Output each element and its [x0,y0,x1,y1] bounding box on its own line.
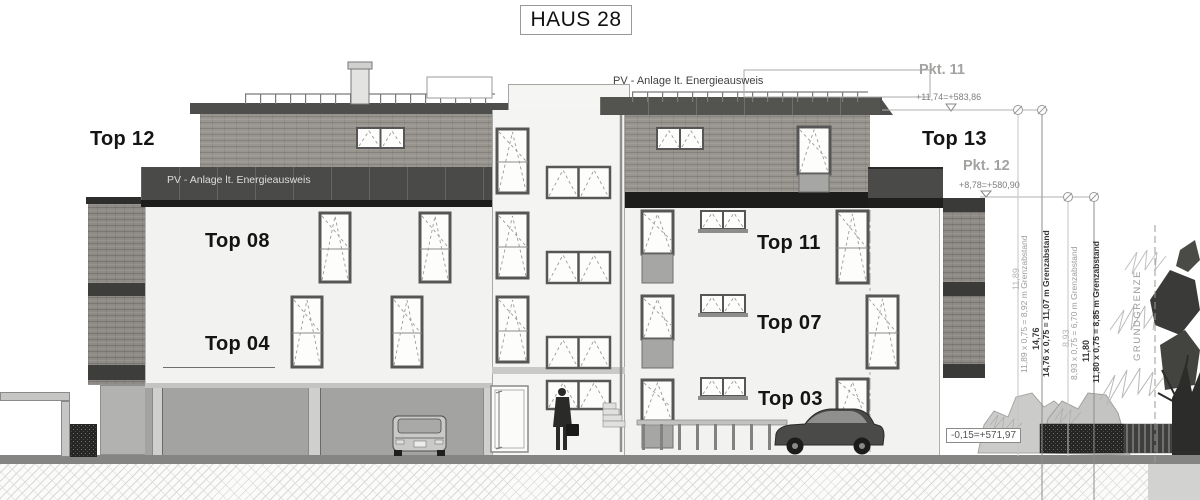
dimension-origin-circles [1014,106,1099,202]
dimension-text-4: 11,80 x 0,75 = 8,85 m Grenzabstand [1091,241,1101,383]
ground-level-label: -0,15=+571,97 [946,428,1021,443]
right-tall-windows [837,211,898,423]
right-colA [642,211,673,421]
boundary-label: GRUNDGRENZE [1132,270,1143,361]
elevation-sheet: HAUS 28 PV - Anlage lt. Energieausweis P… [0,0,1200,500]
chimney [351,68,369,104]
dimension-text-1: 11,89 x 0,75 = 8,92 m Grenzabstand [1019,235,1029,373]
roof-railing-right [632,92,868,97]
apartment-label-top12: Top 12 [90,128,155,151]
point-label-pkt12: Pkt. 12 [963,158,1010,174]
windows-left-block [292,213,450,367]
dimension-text-2: 14,76 x 0,75 = 11,07 m Grenzabstand [1041,230,1051,377]
apartment-label-top07: Top 07 [757,312,822,335]
roof-pv-label: PV - Anlage lt. Energieausweis [613,75,763,87]
level-triangle-pkt12 [981,191,991,197]
right-brick-tall-window [798,127,830,174]
car-side [775,409,884,455]
slat-fence [1124,424,1172,453]
title-box: HAUS 28 [520,5,632,35]
rooftop-unit-right [744,70,930,97]
hedge-dark [1040,424,1124,453]
point-label-pkt11: Pkt. 11 [919,62,965,78]
dimension-value-4: 11,80 [1081,340,1091,362]
apartment-label-top11: Top 11 [757,232,821,255]
level-value-pkt12: +8,78=+580,90 [959,180,1020,190]
dimension-text-3: 8,93 x 0,75 = 6,70 m Grenzabstand [1069,247,1079,381]
stairwell-window-pairs [547,167,610,409]
bush-dark-left [70,424,97,457]
right-pair-sills [698,229,748,400]
chimney-cap [348,62,372,69]
right-brick-window-pair [657,128,703,149]
car-rear [393,416,446,456]
page-title: HAUS 28 [530,8,621,32]
pv-band-label: PV - Anlage lt. Energieausweis [167,174,311,186]
apartment-label-top04: Top 04 [205,333,270,356]
right-brick-panel [799,174,829,192]
apartment-label-top08: Top 08 [205,230,270,253]
rooftop-unit-left [427,77,492,98]
dimension-value-2: 14,76 [1031,327,1041,350]
right-roof-edge [880,97,893,115]
entrance-door [491,386,528,452]
level-value-pkt11: +11,74=+583,86 [916,92,981,102]
apartment-label-top03: Top 03 [758,388,823,411]
apartment-label-top13: Top 13 [922,128,987,151]
